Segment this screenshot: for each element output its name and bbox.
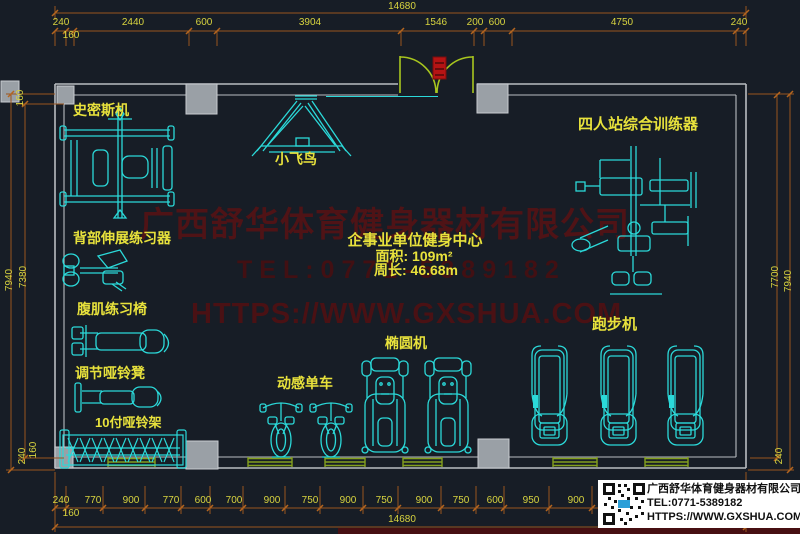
dim-label: 750: [302, 496, 319, 506]
dim-label: 1546: [425, 18, 447, 28]
dim-label: 900: [568, 496, 585, 506]
dim-right-inner: 7700: [771, 266, 781, 288]
label-back-extension: 背部伸展练习器: [73, 231, 171, 245]
dim-label: 900: [123, 496, 140, 506]
label-fly-bird: 小飞鸟: [275, 152, 317, 166]
dim-bottom-offset: 160: [63, 509, 80, 519]
dim-top-total: 14680: [388, 2, 416, 12]
dim-label: 240: [731, 18, 748, 28]
dim-label: 240: [53, 18, 70, 28]
dim-label: 900: [264, 496, 281, 506]
dim-label: 2440: [122, 18, 144, 28]
entrance-marker: [433, 57, 446, 79]
dim-label: 240: [18, 448, 28, 465]
dim-label: 750: [453, 496, 470, 506]
label-smith-machine: 史密斯机: [73, 103, 129, 117]
info-box-company: 广西舒华体育健身器材有限公司: [647, 484, 800, 495]
room-area: 面积: 109m²: [375, 249, 452, 263]
dim-label: 900: [340, 496, 357, 506]
cad-floor-plan: 广西舒华体育健身器材有限公司 TEL:0771-5389182 HTTPS://…: [0, 0, 800, 534]
spin-bikes-drawing: [260, 403, 352, 457]
ab-chair-drawing: [72, 325, 169, 357]
four-station-trainer-drawing: [572, 146, 696, 294]
entrance-door: [326, 56, 473, 97]
info-box-url: HTTPS://WWW.GXSHUA.COM: [647, 512, 800, 523]
dim-label: 240: [775, 448, 785, 465]
room-perimeter: 周长: 46.68m: [374, 263, 458, 277]
dim-label: 200: [467, 18, 484, 28]
dim-label: 600: [487, 496, 504, 506]
label-spin-bike: 动感单车: [277, 376, 333, 390]
fly-bird-drawing: [252, 96, 351, 156]
dim-top-offset: 160: [63, 31, 80, 41]
dim-label: 770: [85, 496, 102, 506]
dim-left-outer: 7940: [5, 269, 15, 291]
dim-label: 4750: [611, 18, 633, 28]
dim-label: 900: [416, 496, 433, 506]
dim-bottom-total: 14680: [388, 515, 416, 525]
back-extension-drawing: [63, 250, 127, 291]
ellipticals-drawing: [362, 358, 471, 453]
dim-label: 950: [523, 496, 540, 506]
label-ab-chair: 腹肌练习椅: [77, 302, 147, 316]
dim-label: 770: [163, 496, 180, 506]
dim-left-inner: 7380: [19, 266, 29, 288]
dim-label: 240: [53, 496, 70, 506]
dumbbell-bench-drawing: [75, 383, 161, 412]
dim-label: 3904: [299, 18, 321, 28]
dim-label: 160: [29, 442, 39, 459]
dim-label: 600: [195, 496, 212, 506]
dim-right-outer: 7940: [784, 270, 794, 292]
label-elliptical: 椭圆机: [385, 336, 427, 350]
label-treadmill: 跑步机: [592, 317, 637, 332]
qr-code: [602, 482, 646, 526]
dim-label: 700: [226, 496, 243, 506]
room-title: 企事业单位健身中心: [347, 233, 482, 248]
treadmills-drawing: [532, 346, 703, 445]
dim-label: 600: [489, 18, 506, 28]
smith-machine-drawing: [60, 108, 174, 218]
dim-label: 160: [16, 90, 26, 107]
label-four-station: 四人站综合训练器: [578, 117, 698, 132]
info-box-tel: TEL:0771-5389182: [647, 498, 742, 509]
dim-label: 600: [196, 18, 213, 28]
label-dumbbell-bench: 调节哑铃凳: [75, 366, 145, 380]
dim-label: 750: [376, 496, 393, 506]
label-dumbbell-rack: 10付哑铃架: [95, 416, 161, 429]
